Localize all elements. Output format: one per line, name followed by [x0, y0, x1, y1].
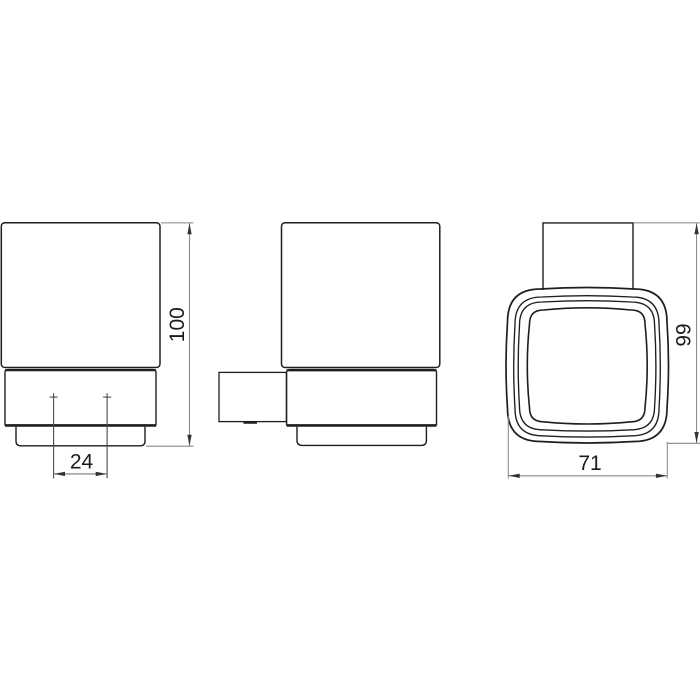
- svg-text:99: 99: [673, 323, 696, 346]
- svg-text:71: 71: [578, 452, 601, 475]
- svg-text:100: 100: [166, 307, 189, 342]
- svg-text:24: 24: [70, 450, 94, 473]
